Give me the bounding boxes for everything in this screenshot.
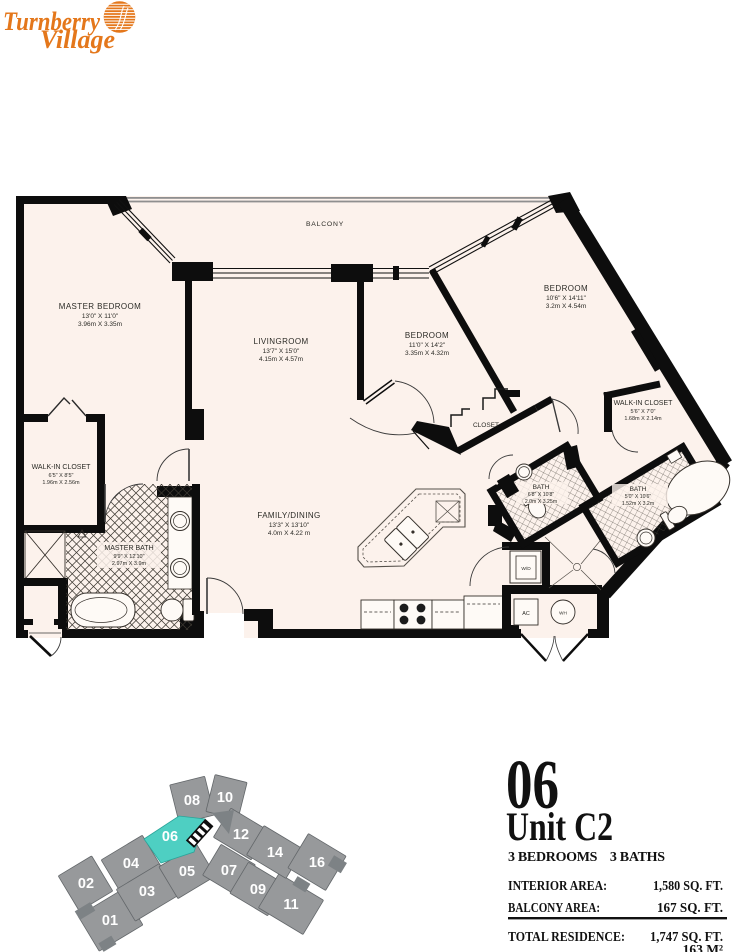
svg-text:07: 07: [221, 863, 237, 879]
svg-text:10'6" X 14'11": 10'6" X 14'11": [546, 295, 587, 302]
svg-text:BALCONY AREA:: BALCONY AREA:: [508, 900, 600, 915]
svg-text:INTERIOR AREA:: INTERIOR AREA:: [508, 878, 607, 893]
svg-text:FAMILY/DINING: FAMILY/DINING: [257, 511, 320, 520]
svg-text:2.0m X 3.25m: 2.0m X 3.25m: [525, 499, 557, 505]
svg-text:TOTAL RESIDENCE:: TOTAL RESIDENCE:: [508, 929, 625, 944]
svg-text:9'9" X 12'10": 9'9" X 12'10": [113, 554, 144, 560]
svg-text:13'0" X 11'0": 13'0" X 11'0": [82, 313, 119, 320]
svg-text:Unit C2: Unit C2: [506, 804, 613, 849]
svg-text:02: 02: [78, 876, 94, 892]
svg-text:09: 09: [250, 882, 266, 898]
svg-text:4.0m X 4.22 m: 4.0m X 4.22 m: [268, 530, 310, 537]
svg-text:AC: AC: [522, 611, 530, 617]
svg-text:16: 16: [309, 855, 325, 871]
svg-text:4.15m X 4.57m: 4.15m X 4.57m: [259, 356, 303, 363]
svg-text:13'3" X 13'10": 13'3" X 13'10": [269, 522, 310, 529]
svg-text:1,580 SQ. FT.: 1,580 SQ. FT.: [653, 878, 723, 893]
svg-text:3.2m X 4.54m: 3.2m X 4.54m: [546, 303, 586, 310]
svg-text:W/D: W/D: [521, 566, 531, 572]
svg-text:11'0" X 14'2": 11'0" X 14'2": [409, 342, 446, 349]
svg-text:BATH: BATH: [533, 484, 550, 491]
svg-text:3 BEDROOMS 3 BATHS: 3 BEDROOMS 3 BATHS: [508, 850, 665, 865]
svg-text:1.52m X 3.2m: 1.52m X 3.2m: [622, 501, 654, 507]
svg-text:03: 03: [139, 884, 155, 900]
svg-text:3.35m X 4.32m: 3.35m X 4.32m: [405, 350, 449, 357]
svg-text:3.96m X 3.35m: 3.96m X 3.35m: [78, 321, 122, 328]
svg-text:11: 11: [283, 897, 298, 913]
svg-text:10: 10: [217, 790, 233, 806]
svg-text:08: 08: [184, 793, 200, 809]
svg-text:1.68m X 2.14m: 1.68m X 2.14m: [624, 416, 662, 422]
svg-text:12: 12: [233, 827, 249, 843]
svg-text:163 M²: 163 M²: [683, 942, 723, 952]
svg-text:BALCONY: BALCONY: [306, 221, 344, 228]
svg-text:01: 01: [102, 913, 118, 929]
svg-text:BEDROOM: BEDROOM: [405, 331, 449, 340]
svg-text:6'5" X 8'5": 6'5" X 8'5": [49, 473, 74, 479]
svg-text:CLOSET: CLOSET: [473, 422, 499, 429]
svg-text:5'6" X 7'0": 5'6" X 7'0": [631, 409, 656, 415]
svg-text:5'0" X 10'6": 5'0" X 10'6": [625, 494, 652, 500]
svg-text:13'7" X 15'0": 13'7" X 15'0": [263, 348, 300, 355]
svg-text:BATH: BATH: [630, 486, 647, 493]
svg-text:14: 14: [267, 845, 283, 861]
svg-text:WALK-IN CLOSET: WALK-IN CLOSET: [614, 400, 674, 407]
svg-text:Village: Village: [40, 25, 115, 54]
svg-text:06: 06: [162, 829, 178, 845]
svg-text:LIVINGROOM: LIVINGROOM: [253, 337, 308, 346]
svg-text:MASTER BATH: MASTER BATH: [104, 545, 153, 552]
svg-text:1.96m X 2.56m: 1.96m X 2.56m: [42, 480, 80, 486]
svg-text:BEDROOM: BEDROOM: [544, 284, 588, 293]
svg-text:04: 04: [123, 856, 139, 872]
svg-text:MASTER BEDROOM: MASTER BEDROOM: [59, 302, 142, 311]
svg-text:WALK-IN CLOSET: WALK-IN CLOSET: [32, 464, 92, 471]
svg-text:167 SQ. FT.: 167 SQ. FT.: [657, 900, 723, 915]
svg-text:05: 05: [179, 864, 195, 880]
svg-text:6'8" X 10'8": 6'8" X 10'8": [528, 492, 555, 498]
svg-text:WH: WH: [559, 611, 567, 616]
svg-text:2.97m X 3.9m: 2.97m X 3.9m: [112, 561, 147, 567]
